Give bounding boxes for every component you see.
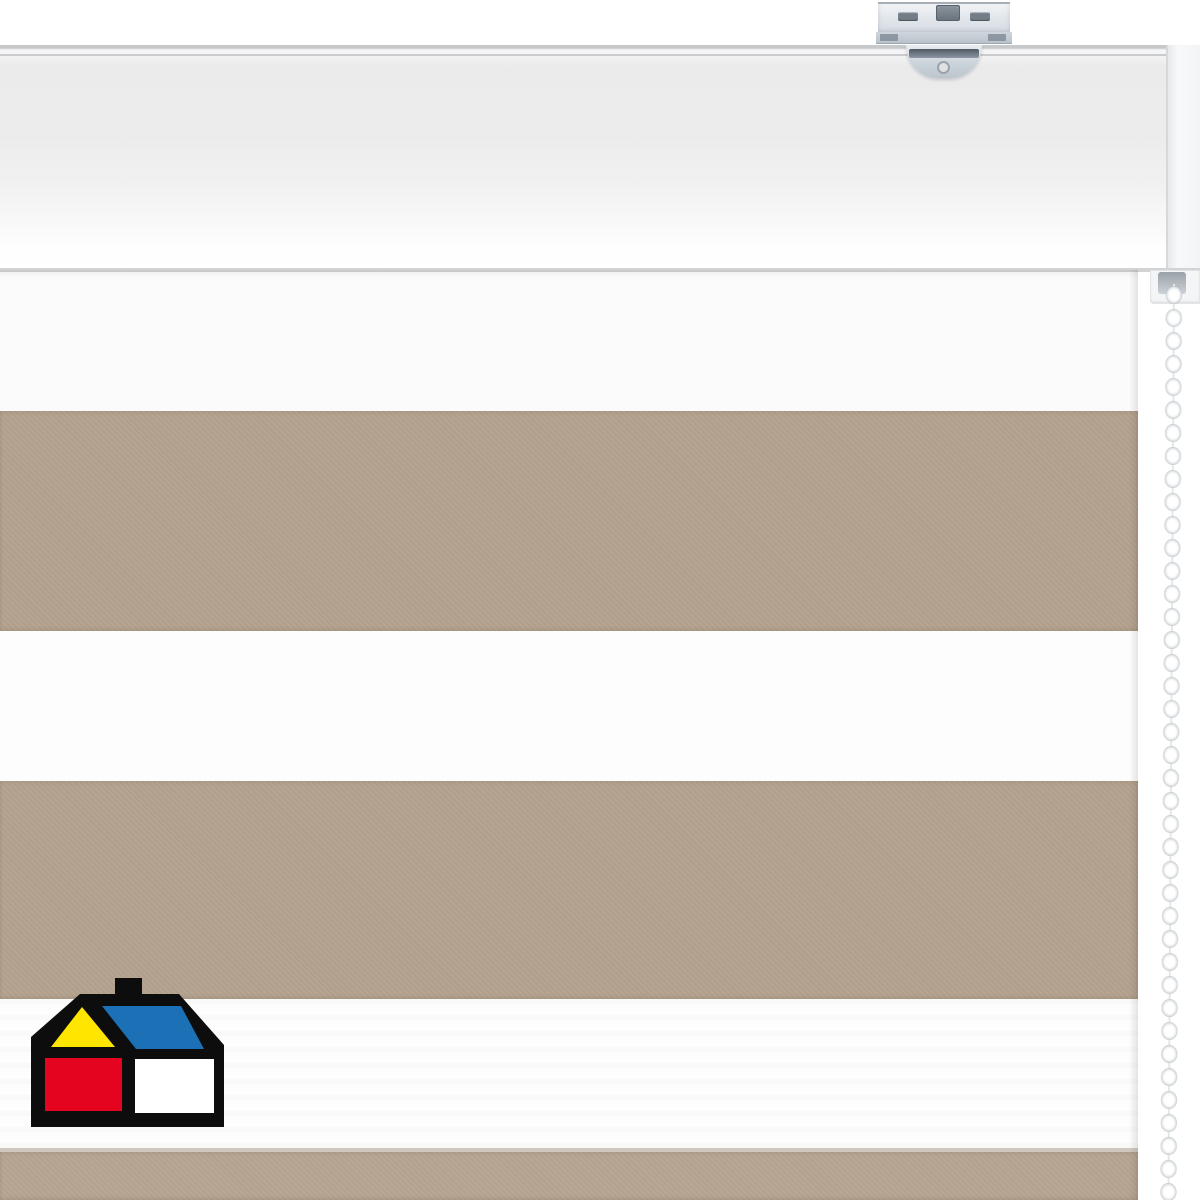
headrail xyxy=(0,45,1200,272)
product-photo-canvas xyxy=(0,0,1200,1200)
bracket-screw-slot-right xyxy=(970,12,990,21)
bracket-tab-slot xyxy=(909,49,979,58)
taupe-band-1 xyxy=(0,411,1138,631)
bracket-lip-mark-right xyxy=(988,34,1006,41)
white-band-top xyxy=(0,270,1138,411)
taupe-band-bottom xyxy=(0,1152,1138,1200)
headrail-groove xyxy=(0,54,1200,56)
taupe-band-2 xyxy=(0,781,1138,999)
bracket-screw-slot-left xyxy=(898,12,918,21)
homecenter-house-logo-icon xyxy=(30,977,226,1128)
chain-pull xyxy=(1155,284,1187,1200)
headrail-end-cap xyxy=(1166,45,1200,270)
bracket-tab-hole xyxy=(937,61,950,74)
logo-red-square xyxy=(45,1058,122,1111)
white-band-middle xyxy=(0,631,1138,781)
bracket-lip-mark-left xyxy=(880,34,898,41)
bracket-center-clip xyxy=(936,5,960,21)
logo-white-square xyxy=(135,1059,214,1113)
